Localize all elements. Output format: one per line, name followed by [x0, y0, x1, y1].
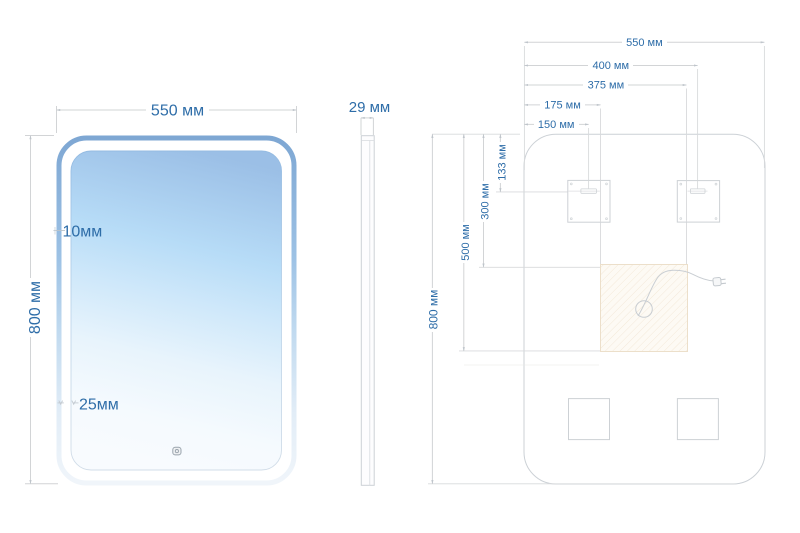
- svg-text:300 мм: 300 мм: [480, 183, 492, 220]
- svg-text:550 мм: 550 мм: [151, 103, 204, 120]
- svg-text:10мм: 10мм: [63, 224, 103, 241]
- svg-text:25мм: 25мм: [79, 397, 119, 414]
- svg-text:550 мм: 550 мм: [626, 37, 663, 49]
- svg-text:400 мм: 400 мм: [593, 60, 630, 72]
- svg-text:29 мм: 29 мм: [349, 99, 390, 116]
- svg-text:133 мм: 133 мм: [496, 144, 508, 181]
- svg-text:800 мм: 800 мм: [427, 290, 441, 330]
- svg-text:800 мм: 800 мм: [27, 281, 44, 334]
- svg-text:500 мм: 500 мм: [460, 224, 472, 261]
- svg-text:375 мм: 375 мм: [588, 80, 625, 92]
- svg-text:150 мм: 150 мм: [538, 119, 575, 131]
- svg-text:175 мм: 175 мм: [544, 100, 581, 112]
